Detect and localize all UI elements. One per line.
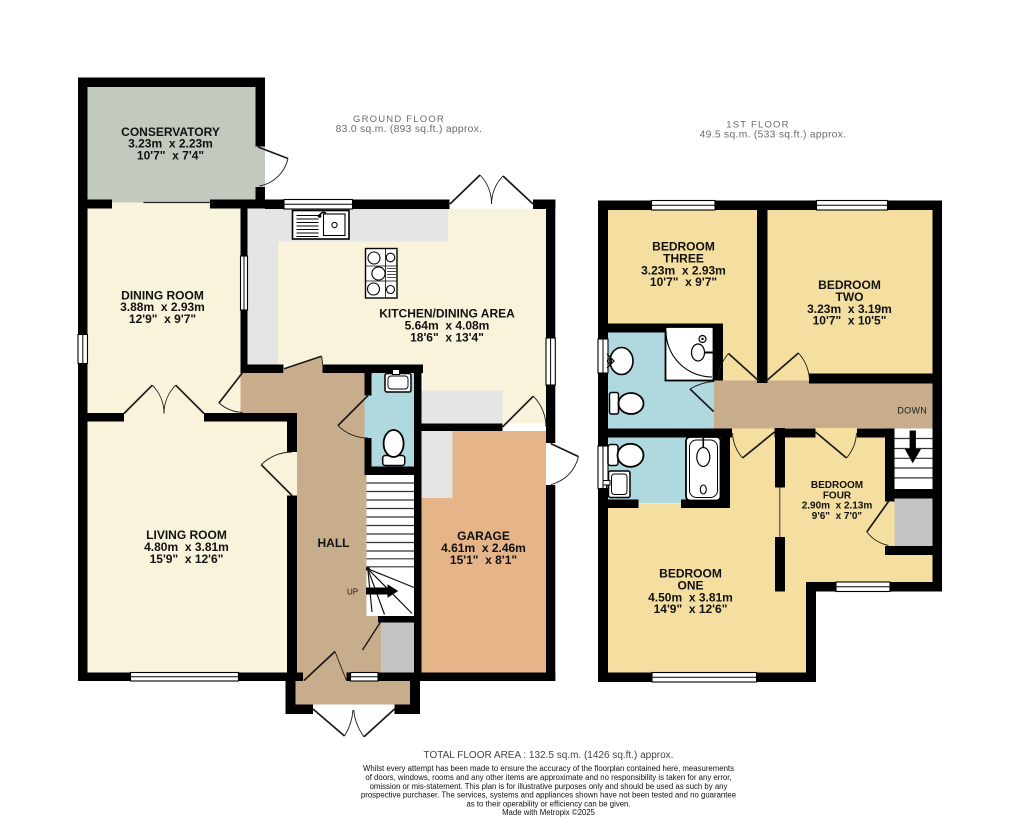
svg-text:83.0 sq.m. (893 sq.ft.) approx: 83.0 sq.m. (893 sq.ft.) approx. — [336, 124, 483, 135]
svg-text:10'7" x 10'5": 10'7" x 10'5" — [813, 314, 887, 328]
svg-text:prospective purchaser. The ser: prospective purchaser. The services, sys… — [361, 791, 736, 800]
svg-text:DOWN: DOWN — [897, 406, 927, 416]
svg-text:omission or mis-statement. Thi: omission or mis-statement. This plan is … — [370, 782, 728, 791]
svg-text:1ST FLOOR: 1ST FLOOR — [726, 119, 789, 130]
svg-text:10'7" x 9'7": 10'7" x 9'7" — [650, 275, 717, 289]
svg-text:14'9" x 12'6": 14'9" x 12'6" — [654, 602, 728, 616]
svg-text:GROUND FLOOR: GROUND FLOOR — [353, 114, 445, 125]
svg-text:9'6" x 7'0": 9'6" x 7'0" — [812, 511, 863, 522]
svg-text:12'9" x 9'7": 12'9" x 9'7" — [129, 312, 196, 326]
svg-text:Whilst every attempt has been: Whilst every attempt has been made to en… — [363, 764, 734, 773]
svg-text:HALL: HALL — [318, 536, 350, 550]
svg-text:UP: UP — [347, 588, 358, 597]
svg-text:49.5 sq.m. (533 sq.ft.) approx: 49.5 sq.m. (533 sq.ft.) approx. — [700, 130, 847, 141]
svg-text:18'6" x 13'4": 18'6" x 13'4" — [410, 330, 484, 344]
svg-text:10'7" x 7'4": 10'7" x 7'4" — [137, 149, 204, 163]
svg-text:15'1" x 8'1": 15'1" x 8'1" — [450, 553, 517, 567]
svg-text:TOTAL FLOOR AREA : 132.5 sq.m.: TOTAL FLOOR AREA : 132.5 sq.m. (1426 sq.… — [424, 750, 674, 761]
svg-text:of doors, windows, rooms and a: of doors, windows, rooms and any other i… — [365, 773, 731, 782]
svg-text:Made with Metropix ©2025: Made with Metropix ©2025 — [502, 808, 596, 817]
svg-text:15'9" x 12'6": 15'9" x 12'6" — [150, 552, 224, 566]
